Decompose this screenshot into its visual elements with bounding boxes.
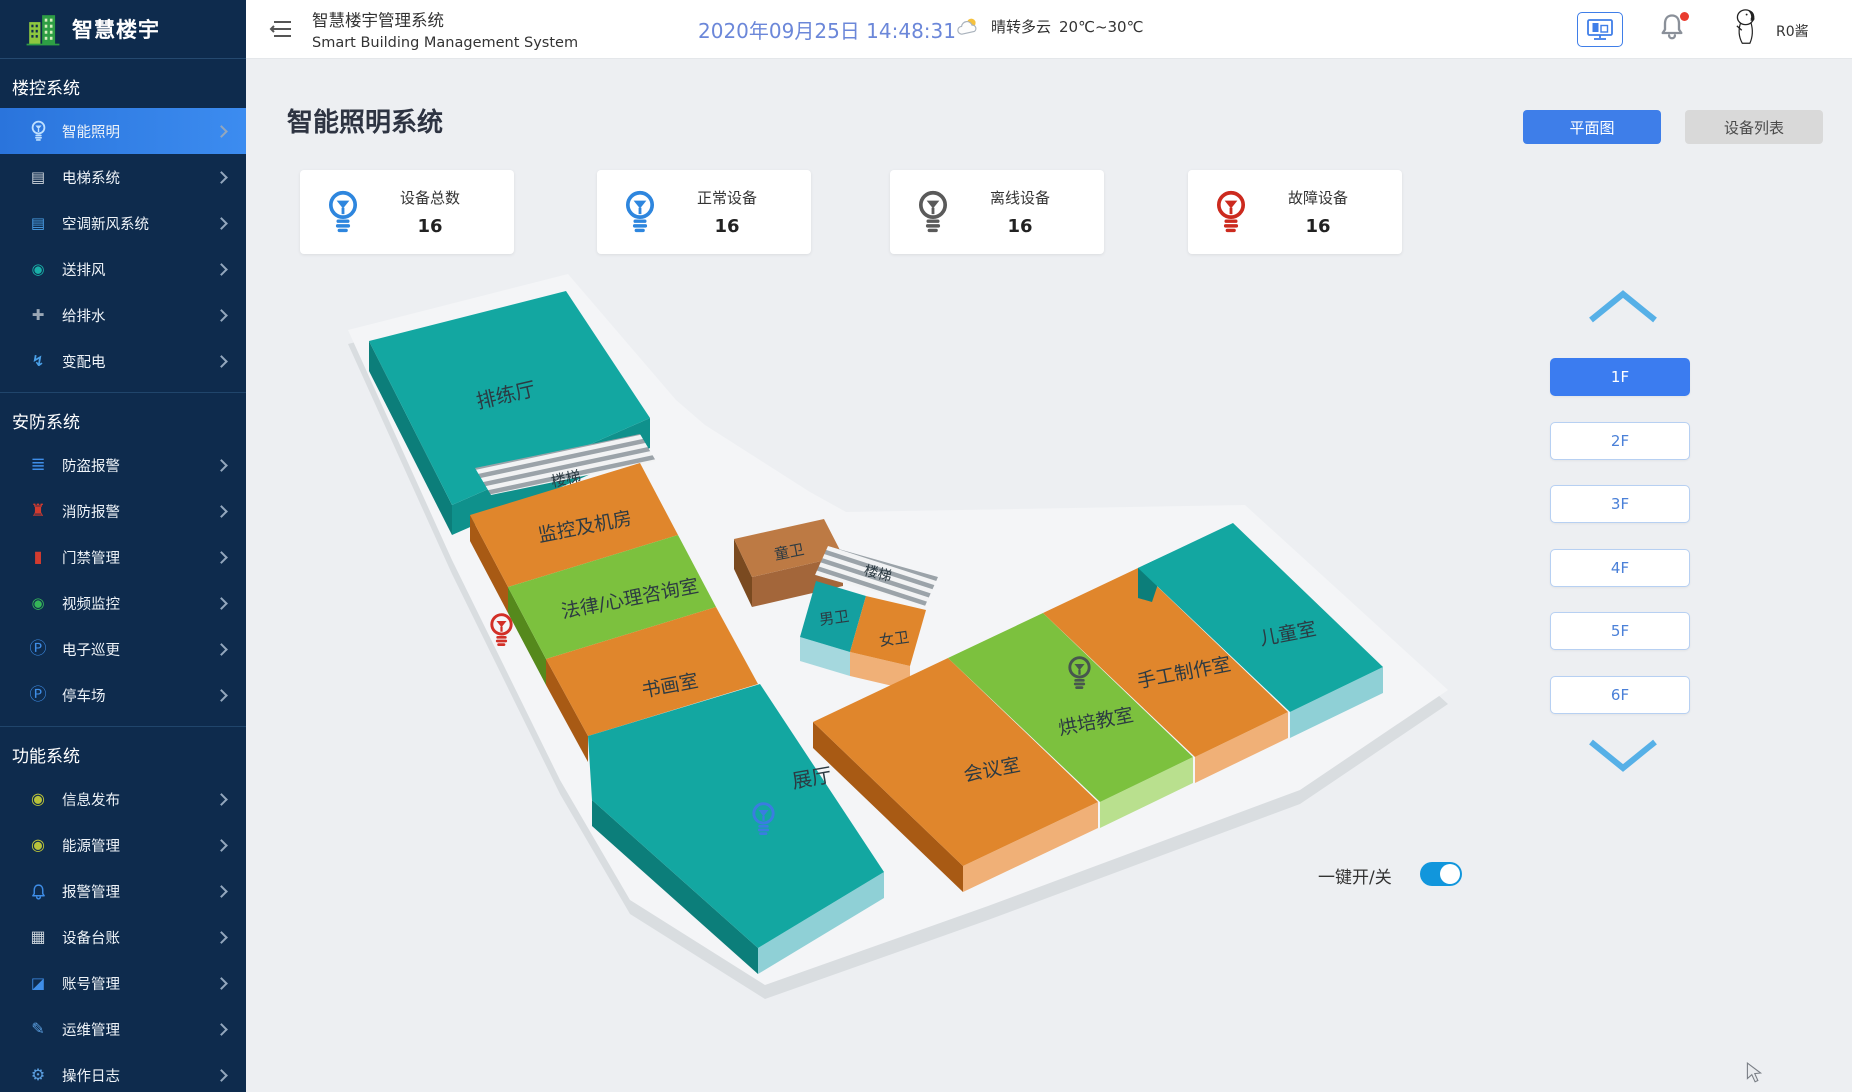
power-distribution-icon: [28, 351, 48, 371]
sidebar-item-label: 信息发布: [62, 789, 120, 810]
floor-down-button[interactable]: [1585, 736, 1661, 782]
bulb-icon: [623, 189, 657, 235]
sidebar-item-label: 账号管理: [62, 973, 120, 994]
sun-cloud-icon: [956, 16, 983, 37]
sidebar-item-label: 防盗报警: [62, 455, 120, 476]
system-subtitle: Smart Building Management System: [312, 35, 578, 51]
fire-hydrant-icon: [28, 501, 48, 521]
top-header: 智慧楼宇管理系统 Smart Building Management Syste…: [246, 0, 1852, 59]
bulb-icon: [1214, 189, 1248, 235]
bulb-icon: [326, 189, 360, 235]
sidebar: 智慧楼宇 楼控系统 智能照明 电梯系统 空调新风系统 送排风 给排水 变配电 安…: [0, 0, 246, 1092]
chevron-right-icon: [215, 355, 228, 368]
ops-icon: [28, 1019, 48, 1039]
device-ledger-icon: [28, 927, 48, 947]
toggle-knob: [1440, 864, 1460, 884]
sidebar-section-security: 安防系统: [0, 393, 246, 442]
sidebar-item-account-management[interactable]: 账号管理: [0, 960, 246, 1006]
system-title-block: 智慧楼宇管理系统 Smart Building Management Syste…: [312, 7, 578, 51]
air-conditioner-icon: [28, 213, 48, 233]
floor-button-6f[interactable]: 6F: [1550, 676, 1690, 714]
chevron-right-icon: [215, 171, 228, 184]
floorplan-3d: 排练厅 楼梯 监控及机房 法律/心理咨询室 书画室 展厅 童卫: [280, 240, 1460, 1000]
chevron-right-icon: [215, 689, 228, 702]
sidebar-item-label: 空调新风系统: [62, 213, 149, 234]
chevron-right-icon: [215, 839, 228, 852]
sidebar-item-label: 消防报警: [62, 501, 120, 522]
master-switch-label: 一键开/关: [1318, 863, 1392, 888]
sidebar-item-door-access[interactable]: 门禁管理: [0, 534, 246, 580]
screen-view-button[interactable]: [1577, 12, 1623, 47]
sidebar-item-water-supply[interactable]: 给排水: [0, 292, 246, 338]
stat-card-text: 设备总数 16: [360, 187, 514, 237]
chevron-right-icon: [215, 505, 228, 518]
stat-card-text: 离线设备 16: [950, 187, 1104, 237]
sidebar-item-label: 变配电: [62, 351, 106, 372]
stat-label: 正常设备: [657, 187, 797, 208]
sidebar-section-functions: 功能系统: [0, 727, 246, 776]
sidebar-item-label: 电子巡更: [62, 639, 120, 660]
chevron-right-icon: [215, 885, 228, 898]
bulb-icon: [916, 189, 950, 235]
sidebar-item-burglar-alarm[interactable]: 防盗报警: [0, 442, 246, 488]
floor-button-4f[interactable]: 4F: [1550, 549, 1690, 587]
master-switch-toggle[interactable]: [1420, 862, 1462, 886]
sidebar-item-label: 停车场: [62, 685, 106, 706]
sidebar-item-elevator[interactable]: 电梯系统: [0, 154, 246, 200]
notification-badge-dot: [1680, 12, 1689, 21]
chevron-right-icon: [215, 459, 228, 472]
stat-value: 16: [657, 216, 797, 237]
stat-label: 离线设备: [950, 187, 1090, 208]
energy-icon: [28, 835, 48, 855]
chevron-right-icon: [215, 1069, 228, 1082]
stat-card-text: 故障设备 16: [1248, 187, 1402, 237]
bulb-icon: [28, 121, 48, 141]
chevron-right-icon: [215, 977, 228, 990]
sidebar-item-patrol[interactable]: 电子巡更: [0, 626, 246, 672]
weather-temperature: 20℃~30℃: [1059, 18, 1143, 36]
stat-card-text: 正常设备 16: [657, 187, 811, 237]
floor-button-5f[interactable]: 5F: [1550, 612, 1690, 650]
chevron-right-icon: [215, 1023, 228, 1036]
parking-icon: [28, 685, 48, 705]
door-access-icon: [28, 547, 48, 567]
weather-condition: 晴转多云: [991, 16, 1051, 37]
sidebar-item-label: 报警管理: [62, 881, 120, 902]
sidebar-item-power-distribution[interactable]: 变配电: [0, 338, 246, 384]
buildings-logo-icon: [24, 11, 62, 47]
chevron-right-icon: [215, 217, 228, 230]
camera-icon: [28, 593, 48, 613]
chevron-right-icon: [215, 643, 228, 656]
chevron-right-icon: [215, 931, 228, 944]
stat-label: 设备总数: [360, 187, 500, 208]
sidebar-section-building-control: 楼控系统: [0, 59, 246, 108]
sidebar-item-label: 能源管理: [62, 835, 120, 856]
sidebar-item-label: 操作日志: [62, 1065, 120, 1086]
sidebar-item-label: 给排水: [62, 305, 106, 326]
fan-icon: [28, 259, 48, 279]
floor-button-2f[interactable]: 2F: [1550, 422, 1690, 460]
sidebar-item-ops-management[interactable]: 运维管理: [0, 1006, 246, 1052]
elevator-icon: [28, 167, 48, 187]
sidebar-item-energy[interactable]: 能源管理: [0, 822, 246, 868]
sidebar-collapse-button[interactable]: [268, 18, 294, 44]
sidebar-item-label: 智能照明: [62, 121, 120, 142]
username-label: R0酱: [1776, 21, 1809, 41]
user-avatar[interactable]: [1732, 8, 1758, 50]
chevron-right-icon: [215, 309, 228, 322]
device-list-view-button[interactable]: 设备列表: [1685, 110, 1823, 144]
account-icon: [28, 973, 48, 993]
chevron-right-icon: [215, 551, 228, 564]
sidebar-item-device-ledger[interactable]: 设备台账: [0, 914, 246, 960]
patrol-icon: [28, 639, 48, 659]
sidebar-item-label: 门禁管理: [62, 547, 120, 568]
sidebar-item-ventilation[interactable]: 送排风: [0, 246, 246, 292]
monitor-icon: [1586, 18, 1614, 42]
sidebar-item-fire-alarm[interactable]: 消防报警: [0, 488, 246, 534]
stat-value: 16: [1248, 216, 1388, 237]
sidebar-item-smart-lighting[interactable]: 智能照明: [0, 108, 246, 154]
sidebar-item-label: 送排风: [62, 259, 106, 280]
sidebar-item-alarm-management[interactable]: 报警管理: [0, 868, 246, 914]
floor-button-3f[interactable]: 3F: [1550, 485, 1690, 523]
stat-value: 16: [360, 216, 500, 237]
chevron-right-icon: [215, 597, 228, 610]
datetime-display: 2020年09月25日 14:48:31: [698, 15, 956, 44]
log-icon: [28, 1065, 48, 1085]
stat-label: 故障设备: [1248, 187, 1388, 208]
app-logo-title: 智慧楼宇: [72, 14, 160, 44]
chevron-right-icon: [215, 125, 228, 138]
sidebar-item-hvac[interactable]: 空调新风系统: [0, 200, 246, 246]
sidebar-item-label: 运维管理: [62, 1019, 120, 1040]
sidebar-item-video-surveillance[interactable]: 视频监控: [0, 580, 246, 626]
sidebar-item-operation-log[interactable]: 操作日志: [0, 1052, 246, 1092]
app-logo: 智慧楼宇: [0, 0, 246, 59]
page-title: 智能照明系统: [287, 102, 443, 139]
mouse-cursor: [1745, 1062, 1763, 1088]
floorplan-view-button[interactable]: 平面图: [1523, 110, 1661, 144]
chevron-right-icon: [215, 263, 228, 276]
stat-value: 16: [950, 216, 1090, 237]
chevron-right-icon: [215, 793, 228, 806]
floor-button-1f[interactable]: 1F: [1550, 358, 1690, 396]
sidebar-item-info-publish[interactable]: 信息发布: [0, 776, 246, 822]
system-title: 智慧楼宇管理系统: [312, 7, 578, 31]
sidebar-item-label: 视频监控: [62, 593, 120, 614]
burglar-alarm-icon: [28, 455, 48, 475]
info-publish-icon: [28, 789, 48, 809]
sidebar-item-label: 设备台账: [62, 927, 120, 948]
floor-up-button[interactable]: [1585, 284, 1661, 330]
sidebar-item-label: 电梯系统: [62, 167, 120, 188]
water-valve-icon: [28, 305, 48, 325]
weather-display: 晴转多云 20℃~30℃: [956, 16, 1143, 37]
sidebar-item-parking[interactable]: 停车场: [0, 672, 246, 718]
alarm-bell-icon: [28, 881, 48, 901]
notifications-button[interactable]: [1658, 12, 1686, 44]
